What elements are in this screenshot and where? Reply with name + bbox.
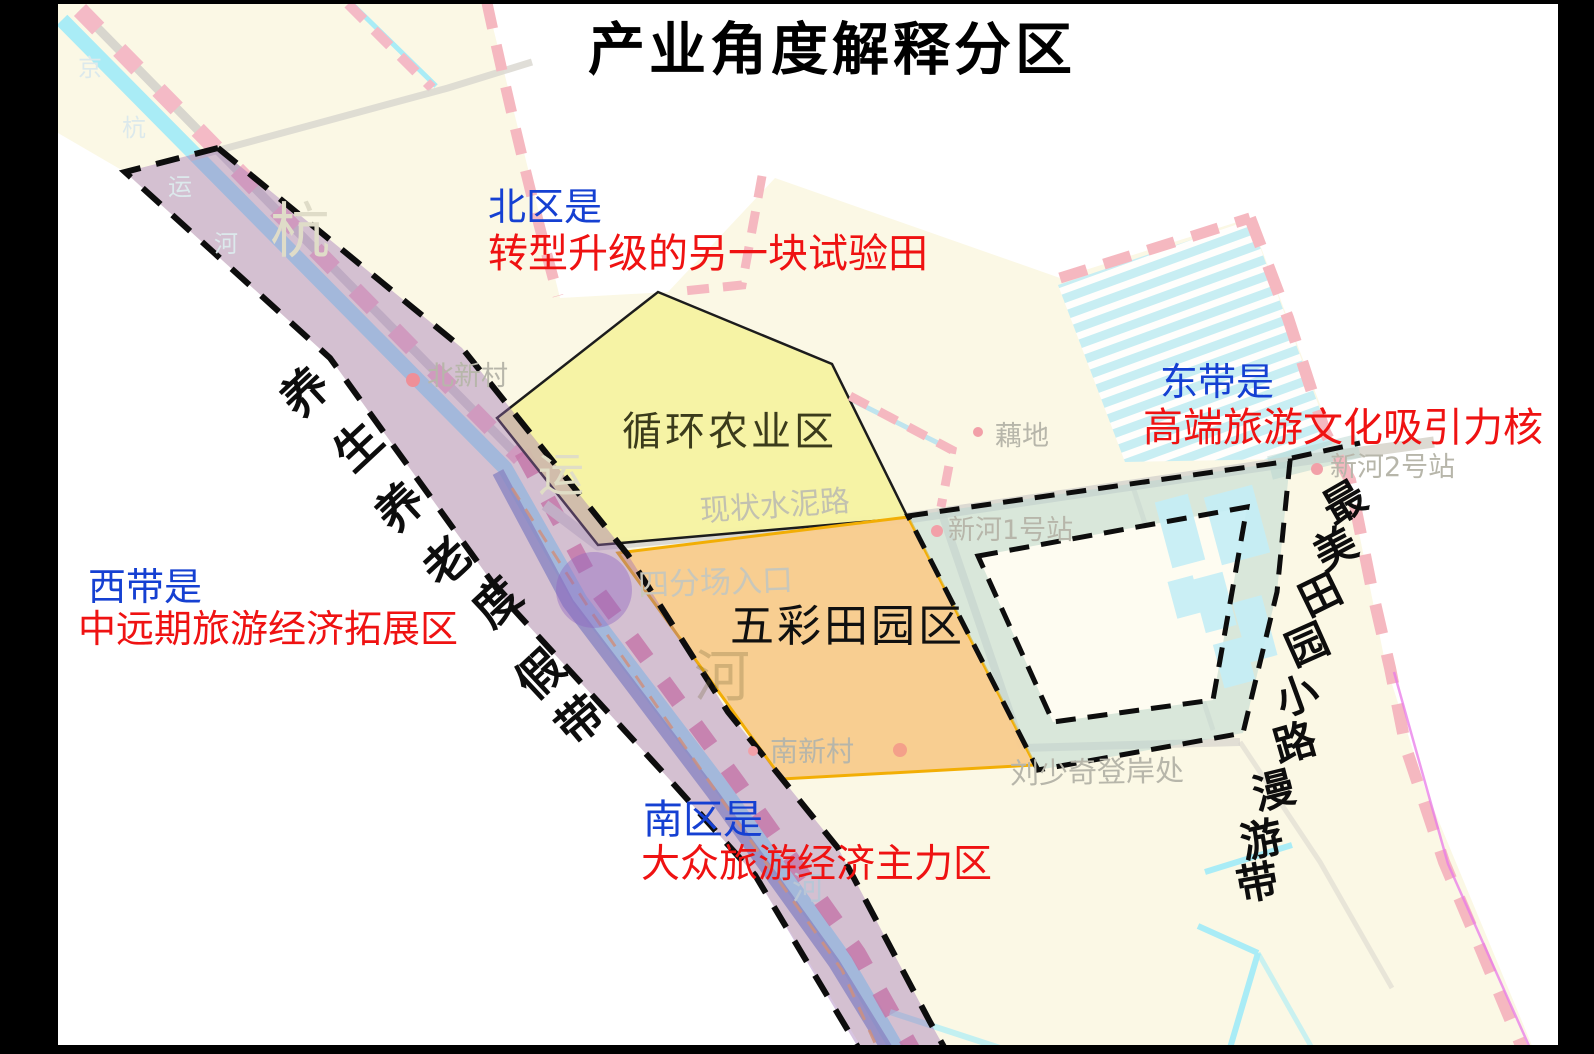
agriculture-zone-label: 循环农业区: [622, 412, 837, 452]
east-zone-label: 东带是: [1160, 363, 1274, 401]
east-zone-desc: 高端旅游文化吸引力核: [1143, 408, 1543, 448]
south-zone-label: 南区是: [643, 800, 763, 840]
south-zone-desc: 大众旅游经济主力区: [641, 845, 992, 884]
page-title: 产业角度解释分区: [588, 22, 1076, 79]
label-beixincun: 北新村: [427, 363, 508, 390]
north-zone-desc: 转型升级的另一块试验田: [488, 234, 928, 274]
pastoral-zone-label: 五彩田园区: [730, 605, 965, 649]
label-oudi: 藕地: [995, 423, 1049, 450]
frame-left: [0, 0, 58, 1054]
label-nanxincun: 南新村: [770, 738, 854, 766]
label-sifenchang: 四分场入口: [638, 565, 794, 601]
watermark-hang: 杭: [122, 116, 146, 140]
watermark-jing: 京: [78, 56, 102, 80]
frame-bottom: [0, 1045, 1594, 1054]
west-zone-desc: 中远期旅游经济拓展区: [78, 610, 458, 648]
watermark-hang-big: 杭: [270, 202, 330, 262]
label-liushaoqi: 刘少奇登岸处: [1010, 756, 1184, 788]
frame-right: [1558, 0, 1594, 1054]
label-xinhe1: 新河1号站: [948, 517, 1073, 544]
watermark-he-big: 河: [694, 650, 750, 706]
watermark-yun-big: 运: [538, 452, 584, 498]
zoning-map-slide: 京 杭 运 河 杭 运 河 河 北新村 现状水泥路 四分场入口 藕地 新河2号站…: [0, 0, 1594, 1054]
watermark-he: 河: [214, 232, 238, 256]
frame-top: [0, 0, 1594, 4]
watermark-yun: 运: [168, 175, 192, 199]
north-zone-label: 北区是: [488, 188, 602, 226]
west-zone-label: 西带是: [88, 568, 202, 606]
